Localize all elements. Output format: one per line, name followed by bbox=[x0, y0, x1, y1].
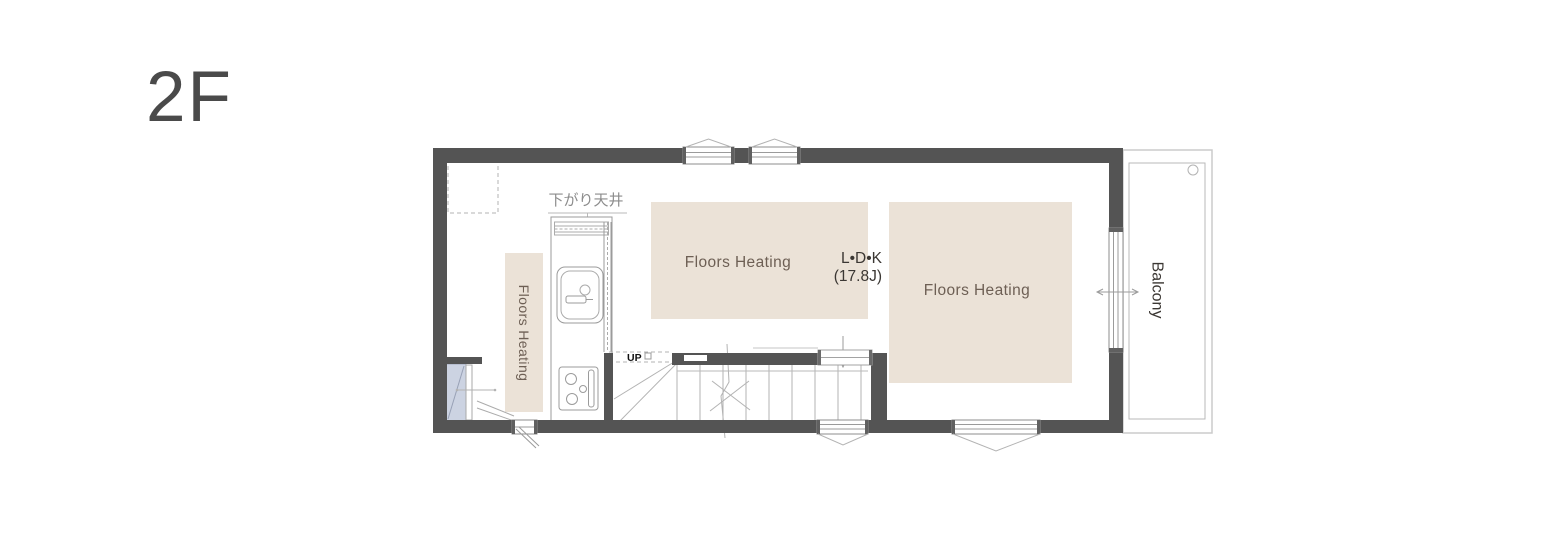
floor-plan-drawing: 2F bbox=[0, 0, 1568, 542]
window-balcony-door bbox=[1109, 228, 1123, 352]
wall-bottom-2 bbox=[537, 420, 818, 433]
window-cap bbox=[817, 420, 820, 434]
wall-top-left bbox=[433, 148, 683, 163]
door-swing-dot bbox=[494, 389, 497, 392]
floor-title: 2F bbox=[146, 58, 233, 137]
lowered-ceiling-label: 下がり天井 bbox=[548, 192, 623, 209]
faucet-icon bbox=[566, 296, 586, 303]
window-bottom-right bbox=[952, 420, 1040, 434]
window-cap bbox=[683, 147, 686, 164]
ceiling-feature-dashed-outline bbox=[448, 166, 498, 213]
window-cap bbox=[865, 420, 868, 434]
window-top-2 bbox=[749, 147, 800, 164]
wall-kitchen-side bbox=[604, 353, 613, 421]
railing-notch bbox=[684, 355, 707, 361]
wall-left bbox=[433, 148, 447, 433]
window-cap bbox=[797, 147, 800, 164]
wall-top-right bbox=[800, 148, 1123, 163]
wall-top-mullion bbox=[734, 148, 749, 163]
cooktop bbox=[559, 367, 598, 410]
entry-door bbox=[446, 364, 514, 421]
window-cap bbox=[1109, 348, 1123, 352]
up-marker-square bbox=[645, 353, 651, 359]
sink bbox=[557, 267, 603, 323]
floors-heating-label-living: Floors Heating bbox=[685, 254, 791, 271]
opening-frame-cap bbox=[869, 350, 872, 365]
balcony-label: Balcony bbox=[1148, 262, 1165, 319]
wall-entry-lintel bbox=[446, 357, 482, 364]
stair-break-cross-lines bbox=[710, 381, 750, 411]
wall-right-upper bbox=[1109, 148, 1123, 228]
stairs-up-label: UP bbox=[627, 352, 642, 364]
lowered-ceiling-boundary-line bbox=[548, 213, 627, 217]
opening-frame-cap bbox=[818, 350, 821, 365]
kitchen-unit bbox=[551, 217, 612, 422]
stair-opening-frame bbox=[818, 350, 872, 365]
window-bottom-mid bbox=[817, 420, 868, 434]
window-cap bbox=[534, 420, 537, 434]
door-frame bbox=[466, 365, 472, 420]
floor-plan-page: 2F bbox=[0, 0, 1568, 542]
window-bottom-mid-awning-triangle bbox=[818, 434, 868, 445]
room-name-ldk: L•D•K bbox=[841, 250, 883, 267]
floors-heating-label-kitchen-strip: Floors Heating bbox=[516, 285, 532, 382]
wall-bottom-3 bbox=[868, 420, 953, 433]
window-cap bbox=[749, 147, 752, 164]
window-bottom-right-awning-triangle bbox=[953, 434, 1040, 451]
balcony-drain-icon bbox=[1188, 165, 1198, 175]
window-cap bbox=[1037, 420, 1040, 434]
floors-heating-label-right-room: Floors Heating bbox=[924, 282, 1030, 299]
door-swing-dot bbox=[456, 389, 459, 392]
stair-direction-lines bbox=[614, 360, 680, 424]
window-cap bbox=[731, 147, 734, 164]
wall-bottom-1 bbox=[433, 420, 513, 433]
wall-bottom-4 bbox=[1040, 420, 1123, 433]
stair-treads bbox=[677, 365, 861, 420]
room-size-ldk: (17.8J) bbox=[834, 268, 882, 285]
window-cap bbox=[512, 420, 515, 434]
window-cap bbox=[1109, 228, 1123, 232]
window-cap bbox=[952, 420, 955, 434]
balcony-inner-line bbox=[1129, 163, 1205, 419]
wall-stair-stub bbox=[871, 353, 887, 421]
window-top-1 bbox=[683, 147, 734, 164]
